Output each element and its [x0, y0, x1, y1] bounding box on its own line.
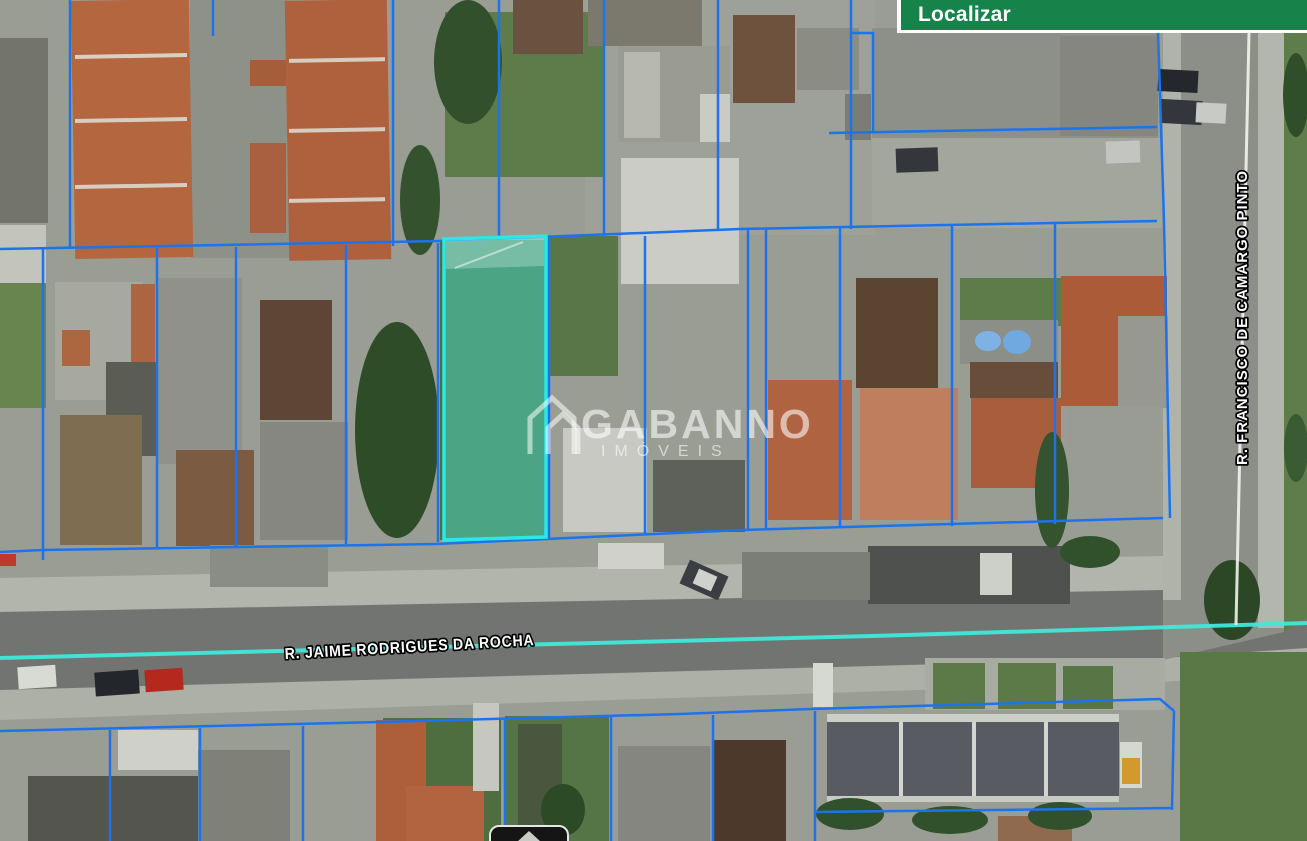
satellite-map[interactable]: R. JAIME RODRIGUES DA ROCHA R. FRANCISCO…	[0, 0, 1307, 841]
map-viewport[interactable]: R. JAIME RODRIGUES DA ROCHA R. FRANCISCO…	[0, 0, 1307, 841]
localizar-button[interactable]: Localizar	[897, 0, 1307, 33]
chevron-up-icon	[517, 831, 541, 841]
watermark-title: GABANNO	[581, 401, 814, 447]
street-label-vertical: R. FRANCISCO DE CAMARGO PINTO	[1234, 170, 1251, 465]
localizar-button-label: Localizar	[901, 3, 1011, 27]
watermark-subtitle: IMÓVEIS	[601, 441, 731, 460]
highlighted-parcel[interactable]	[444, 236, 546, 540]
expand-panel-button[interactable]	[489, 825, 569, 841]
